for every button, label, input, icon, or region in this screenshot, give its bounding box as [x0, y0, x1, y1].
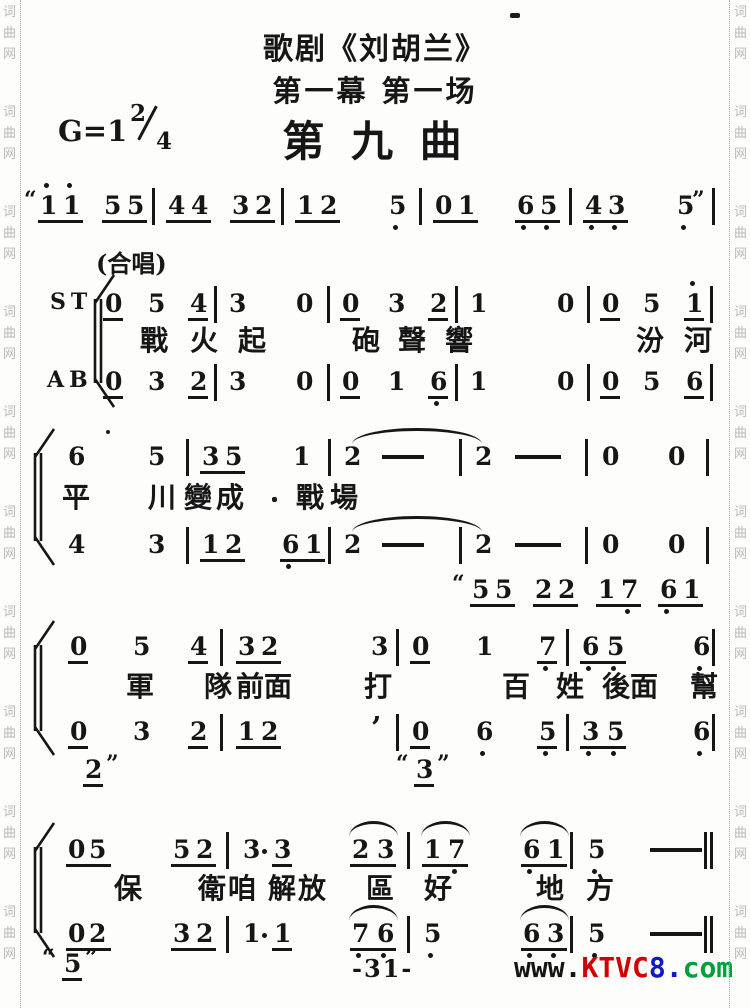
site-watermark-char: 词: [3, 106, 16, 119]
sheet-music-page: 歌剧《刘胡兰》 第一幕 第一场 G=1 2 4 第 九 曲 (合唱) ST AB…: [0, 0, 750, 1008]
quote-mark: “: [24, 188, 37, 212]
note: 3: [547, 920, 564, 948]
barline: [327, 364, 330, 401]
note: 5: [588, 836, 605, 864]
note: 2: [535, 576, 552, 604]
note: 3: [148, 531, 165, 559]
lyric-char: 前: [236, 672, 264, 701]
note: 0: [557, 368, 574, 396]
lyric-char: 咱: [228, 874, 256, 903]
eighth-underline: [414, 784, 434, 787]
eighth-underline: [236, 661, 281, 664]
dash-rest: [515, 543, 561, 547]
print-artifact: [106, 430, 110, 434]
barline: [419, 188, 422, 225]
lyric-char: 面: [264, 672, 292, 701]
barline: [712, 714, 715, 751]
note: 5: [127, 192, 144, 220]
barline: [587, 364, 590, 401]
lyric-char: 場: [330, 483, 358, 512]
page-number: -31-: [352, 954, 413, 983]
barline: [570, 916, 573, 953]
site-watermark-char: 网: [3, 748, 16, 761]
breath-mark: ’: [371, 712, 381, 745]
site-watermark-char: 网: [734, 848, 747, 861]
lyric-char: 保: [114, 874, 142, 903]
note: 3: [202, 443, 219, 471]
octave-dot-below: [286, 564, 291, 569]
site-watermark-char: 网: [734, 748, 747, 761]
note: 2: [225, 531, 242, 559]
sys3-lower: 4312612200: [0, 531, 750, 571]
site-watermark-char: 曲: [734, 827, 747, 840]
octave-dot-below: [521, 225, 526, 230]
lyric-char: 戰: [140, 326, 168, 355]
url-part: 8: [649, 951, 666, 984]
barline: [327, 286, 330, 323]
site-watermark-char: 网: [3, 848, 16, 861]
final-barline: [704, 916, 707, 953]
octave-dot-below: [664, 609, 669, 614]
octave-dot-below: [434, 401, 439, 406]
lyric-char: 地: [536, 874, 564, 903]
note: 6: [430, 368, 447, 396]
site-watermark-char: 曲: [734, 427, 747, 440]
note: 0: [412, 718, 429, 746]
site-watermark-char: 网: [734, 548, 747, 561]
note: 2: [352, 836, 369, 864]
site-watermark-char: 曲: [3, 427, 16, 440]
continuation-quotes: 2”“3”: [0, 756, 750, 796]
site-watermark-char: 网: [734, 348, 747, 361]
note: 5: [64, 950, 81, 978]
site-watermark-char: 曲: [734, 527, 747, 540]
barline: [214, 364, 217, 401]
barline: [706, 439, 709, 476]
lyric-char: 變: [184, 483, 212, 512]
note: 0: [70, 633, 87, 661]
site-watermark-char: 词: [3, 406, 16, 419]
site-watermark-url: www.KTVC8.com: [514, 951, 733, 984]
note: 1: [274, 920, 291, 948]
barline: [706, 527, 709, 564]
eighth-underline: [537, 661, 557, 664]
eighth-underline: [188, 318, 208, 321]
note: 5: [539, 718, 556, 746]
octave-dot-below: [586, 666, 591, 671]
site-watermark-char: 词: [734, 406, 747, 419]
eighth-underline: [166, 220, 211, 223]
eighth-underline: [428, 396, 448, 399]
note: 4: [68, 531, 85, 559]
eighth-underline: [62, 978, 82, 981]
note: 1: [547, 836, 564, 864]
dash-rest: [515, 455, 561, 459]
note: 0: [70, 718, 87, 746]
note: 5: [643, 368, 660, 396]
slur-arc: [520, 821, 569, 837]
eighth-underline: [171, 864, 216, 867]
url-part: .: [666, 951, 683, 984]
dash-rest: [650, 848, 702, 852]
final-barline: [710, 916, 713, 953]
note: 2: [255, 192, 272, 220]
eighth-underline: [68, 661, 88, 664]
note: 7: [448, 836, 465, 864]
site-watermark-char: 网: [734, 448, 747, 461]
note: 1: [293, 443, 310, 471]
barline: [566, 714, 569, 751]
lyric-char: 打: [364, 672, 392, 701]
barline: [328, 439, 331, 476]
lyric-char: 軍: [126, 672, 154, 701]
note: 4: [190, 633, 207, 661]
note: 0: [412, 633, 429, 661]
note: 0: [557, 290, 574, 318]
intro-line: “115544321250165435”: [0, 192, 750, 232]
eighth-underline: [68, 746, 88, 749]
site-watermark-char: 曲: [734, 327, 747, 340]
eighth-underline: [83, 784, 103, 787]
eighth-underline: [350, 864, 396, 867]
system-brace: [24, 427, 58, 567]
slur-arc: [421, 821, 470, 837]
octave-dot-above: [690, 281, 695, 286]
final-barline: [704, 832, 707, 869]
note: 3: [229, 368, 246, 396]
note: 2: [558, 576, 575, 604]
site-watermark-char: 词: [3, 306, 16, 319]
note: 0: [668, 443, 685, 471]
note: 7: [539, 633, 556, 661]
lyric-char: 方: [586, 874, 614, 903]
print-artifact: [510, 13, 520, 18]
eighth-underline: [533, 604, 578, 607]
note: 5: [472, 576, 489, 604]
barline: [712, 629, 715, 666]
octave-dot-below: [589, 225, 594, 230]
site-watermark-char: 词: [734, 106, 747, 119]
site-watermark-char: 曲: [3, 627, 16, 640]
note: 1: [424, 836, 441, 864]
note: 0: [296, 290, 313, 318]
barline: [455, 286, 458, 323]
lyric-char: 平: [62, 483, 90, 512]
url-part: com: [683, 951, 734, 984]
note: 6: [377, 920, 394, 948]
lyric-char: 後: [602, 672, 630, 701]
site-watermark-char: 词: [3, 906, 16, 919]
note: 6: [282, 531, 299, 559]
note: 1: [40, 192, 57, 220]
site-watermark-char: 词: [734, 506, 747, 519]
note: 5: [607, 718, 624, 746]
eighth-underline: [580, 661, 626, 664]
quote-mark: ”: [106, 752, 119, 776]
lyric-char: 姓: [556, 672, 584, 701]
note: 5: [607, 633, 624, 661]
eighth-underline: [188, 396, 208, 399]
lyric-char: 解: [268, 874, 296, 903]
note: 5: [133, 633, 150, 661]
note: 2: [196, 920, 213, 948]
note: 6: [68, 443, 85, 471]
note: 3: [388, 290, 405, 318]
note: 3: [274, 836, 291, 864]
note: 7: [621, 576, 638, 604]
sys4-upper: 054323017656: [0, 633, 750, 673]
system-brace: [84, 273, 118, 409]
barline: [226, 832, 229, 869]
act-scene-title: 第一幕 第一场: [0, 68, 750, 110]
note: 0: [602, 443, 619, 471]
url-part: KTVC: [581, 951, 648, 984]
note: 5: [104, 192, 121, 220]
quote-mark: “: [452, 572, 465, 596]
site-watermark-char: 网: [3, 348, 16, 361]
eighth-underline: [515, 220, 560, 223]
site-watermark-char: 网: [734, 148, 747, 161]
eighth-underline: [200, 559, 245, 562]
barline: [396, 629, 399, 666]
page-edge-dotted-line: [729, 0, 730, 1008]
note: 0: [668, 531, 685, 559]
lyric-char: 好: [424, 874, 452, 903]
site-watermark-char: 网: [3, 548, 16, 561]
system-brace: [24, 619, 58, 757]
eighth-underline: [295, 220, 340, 223]
site-watermark-char: 曲: [734, 627, 747, 640]
barline: [214, 286, 217, 323]
eighth-underline: [600, 318, 620, 321]
eighth-underline: [200, 471, 245, 474]
note: 0: [68, 836, 85, 864]
octave-dot-below: [393, 225, 398, 230]
eighth-underline: [188, 746, 208, 749]
dotted-note-dot: [262, 849, 267, 854]
site-watermark-char: 曲: [3, 727, 16, 740]
quote-mark: “: [396, 752, 409, 776]
octave-dot-below: [625, 609, 630, 614]
lyric-char: 起: [238, 326, 266, 355]
eighth-underline: [102, 220, 147, 223]
note: 2: [344, 443, 361, 471]
barline: [186, 439, 189, 476]
barline: [396, 714, 399, 751]
eighth-underline: [600, 396, 620, 399]
barline: [566, 629, 569, 666]
lyrics-line-2: 平川變成戰場: [0, 483, 750, 517]
note: 1: [297, 192, 314, 220]
site-watermark-char: 网: [3, 948, 16, 961]
dash-rest: [650, 932, 702, 936]
octave-dot-above: [44, 183, 49, 188]
note: 3: [377, 836, 394, 864]
eighth-underline: [684, 318, 704, 321]
eighth-underline: [188, 661, 208, 664]
note: 2: [190, 718, 207, 746]
note: 1: [476, 633, 493, 661]
note: 6: [686, 368, 703, 396]
note: 2: [89, 920, 106, 948]
note: 1: [458, 192, 475, 220]
eighth-underline: [521, 864, 567, 867]
final-barline: [710, 832, 713, 869]
octave-dot-below: [681, 225, 686, 230]
site-watermark-char: 词: [734, 606, 747, 619]
note: 0: [435, 192, 452, 220]
slur-arc: [352, 516, 482, 532]
lyric-char: 火: [190, 326, 218, 355]
barline: [585, 527, 588, 564]
barline: [328, 527, 331, 564]
note: 2: [261, 633, 278, 661]
note: 3: [232, 192, 249, 220]
barline: [152, 188, 155, 225]
lyric-char: 河: [684, 326, 712, 355]
barline: [585, 439, 588, 476]
note: 3: [243, 836, 260, 864]
note: 2: [196, 836, 213, 864]
barline: [710, 364, 713, 401]
site-watermark-char: 词: [734, 6, 747, 19]
note: 3: [371, 633, 388, 661]
note: 6: [660, 576, 677, 604]
note: 1: [63, 192, 80, 220]
eighth-underline: [38, 220, 83, 223]
site-watermark-char: 词: [734, 806, 747, 819]
barline: [459, 439, 462, 476]
lyric-char: 區: [366, 874, 394, 903]
note: 5: [495, 576, 512, 604]
lyric-char: 汾: [636, 326, 664, 355]
site-watermark-char: 曲: [734, 127, 747, 140]
note: 6: [517, 192, 534, 220]
note: 2: [430, 290, 447, 318]
site-watermark-char: 曲: [734, 727, 747, 740]
note: 5: [173, 836, 190, 864]
note: 5: [225, 443, 242, 471]
note: 2: [320, 192, 337, 220]
note: 1: [598, 576, 615, 604]
slur-arc: [349, 821, 398, 837]
barline: [407, 832, 410, 869]
eighth-underline: [280, 559, 325, 562]
site-watermark-char: 词: [3, 506, 16, 519]
eighth-underline: [433, 220, 478, 223]
system-brace: [24, 821, 58, 959]
sys5-upper: 0552332317615: [0, 836, 750, 876]
note: 4: [191, 192, 208, 220]
octave-dot-above: [67, 183, 72, 188]
note: 0: [602, 368, 619, 396]
note: 4: [585, 192, 602, 220]
note: 0: [342, 290, 359, 318]
barline: [570, 832, 573, 869]
lyric-char: 成: [216, 483, 244, 512]
lyrics-line-4: 保衛咱解放區好地方: [0, 874, 750, 908]
dash-rest: [382, 455, 424, 459]
barline: [459, 527, 462, 564]
lyric-char: 面: [630, 672, 658, 701]
site-watermark-char: 曲: [734, 927, 747, 940]
site-watermark-char: 网: [734, 48, 747, 61]
barline: [281, 188, 284, 225]
note: 6: [693, 633, 710, 661]
note: 1: [683, 576, 700, 604]
lyric-char: 川: [148, 483, 176, 512]
note: 6: [476, 718, 493, 746]
eighth-underline: [422, 864, 468, 867]
sys3-upper: 653512200: [0, 443, 750, 483]
note: 1: [305, 531, 322, 559]
note: 6: [582, 633, 599, 661]
quote-mark: ”: [692, 188, 705, 212]
note: 1: [388, 368, 405, 396]
note: 1: [470, 290, 487, 318]
dash-rest: [382, 543, 424, 547]
lyric-char: 砲: [352, 326, 380, 355]
barline: [226, 916, 229, 953]
note: 0: [68, 920, 85, 948]
note: 5: [148, 290, 165, 318]
site-watermark-char: 网: [734, 248, 747, 261]
barline: [455, 364, 458, 401]
barline: [569, 188, 572, 225]
eighth-underline: [580, 746, 626, 749]
lyric-char: 幫: [690, 672, 718, 701]
note: 4: [168, 192, 185, 220]
quote-mark: ”: [437, 752, 450, 776]
barline: [220, 714, 223, 751]
note: 2: [475, 531, 492, 559]
site-watermark-char: 词: [3, 6, 16, 19]
note: 5: [389, 192, 406, 220]
lyric-char: 百: [502, 672, 530, 701]
site-watermark-char: 曲: [3, 27, 16, 40]
site-watermark-char: 网: [3, 648, 16, 661]
note: 2: [190, 368, 207, 396]
quote-mark: ”: [85, 946, 98, 970]
octave-dot-below: [612, 225, 617, 230]
note: 3: [416, 756, 433, 784]
note: 0: [342, 368, 359, 396]
barline: [710, 286, 713, 323]
barline: [220, 629, 223, 666]
note: 7: [352, 920, 369, 948]
site-watermark-char: 词: [3, 706, 16, 719]
note: 3: [133, 718, 150, 746]
note: 5: [540, 192, 557, 220]
eighth-underline: [340, 396, 360, 399]
site-watermark-char: 曲: [734, 27, 747, 40]
site-watermark-char: 曲: [3, 227, 16, 240]
note: 5: [588, 920, 605, 948]
note: 6: [693, 718, 710, 746]
note: 1: [470, 368, 487, 396]
lyric-char: 隊: [204, 672, 232, 701]
eighth-underline: [410, 661, 430, 664]
site-watermark-char: 词: [3, 606, 16, 619]
note: 0: [602, 531, 619, 559]
eighth-underline: [410, 746, 430, 749]
note: 2: [261, 718, 278, 746]
site-watermark-char: 曲: [3, 327, 16, 340]
note: 1: [686, 290, 703, 318]
lyric-char: 戰: [296, 483, 324, 512]
note: 0: [602, 290, 619, 318]
print-artifact: [272, 497, 277, 502]
